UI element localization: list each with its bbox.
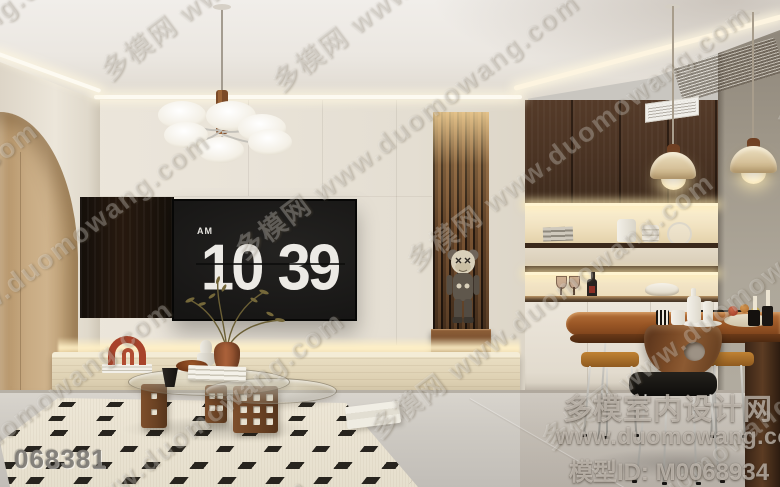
wine-bottle-label: [589, 286, 595, 293]
led-strip: [525, 272, 718, 275]
chair-back-hole: [684, 342, 705, 361]
table-vase-small: [703, 301, 713, 323]
watermark-model-id: M0068934: [656, 459, 769, 486]
wall-panel-seam: [396, 100, 397, 345]
dining-chair-seat: [581, 352, 639, 367]
wine-glass-stem: [560, 287, 562, 295]
watermark-model-line: 模型ID: M0068934: [556, 452, 780, 487]
arch-sculpture-inner: [122, 348, 134, 365]
kitchen-wall-band: [525, 248, 718, 267]
wine-glass-stem: [573, 287, 575, 295]
wine-glass: [556, 276, 567, 289]
render-id: 068381: [14, 444, 107, 475]
chandelier: [138, 2, 322, 170]
table-vase: [687, 296, 701, 323]
rug-pattern-row: [0, 477, 415, 484]
striped-cup: [656, 310, 669, 325]
watermark-model-label: 模型ID:: [569, 459, 649, 486]
bench-books: [102, 364, 152, 373]
plant-branches: [172, 272, 302, 350]
led-strip: [525, 203, 718, 206]
candlestick: [762, 306, 773, 326]
kitchen-backsplash-niche: [525, 272, 718, 297]
wine-glass: [569, 276, 580, 289]
shelf-canister: [617, 219, 636, 242]
pendant-cord: [752, 12, 754, 148]
tv-side-panel: [80, 197, 174, 318]
lotus-bowl: [645, 283, 679, 296]
interior-render-canvas: AM 10 39: [0, 0, 780, 487]
candlestick: [748, 310, 760, 326]
mug: [671, 310, 685, 325]
bearbrick-figure: [445, 247, 481, 331]
watermark-url: www.duomowang.com: [556, 423, 780, 450]
coffee-table-books: [188, 365, 246, 382]
watermark-brand: 多模室内设计网: [558, 386, 778, 428]
flip-clock-seam: [196, 263, 345, 265]
shelf-books: [543, 226, 573, 241]
shelf-bowl-stack: [642, 225, 659, 242]
wall-panel-seam: [322, 100, 323, 196]
fruit-apple: [728, 306, 738, 316]
pendant-cord: [672, 6, 674, 156]
